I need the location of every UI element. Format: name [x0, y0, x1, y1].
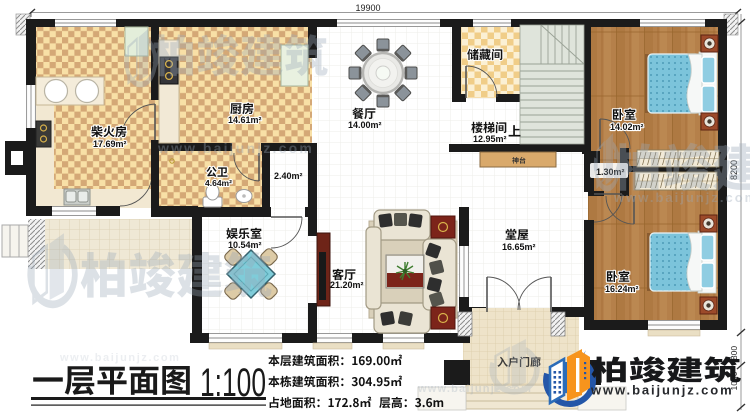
svg-text:16.65m²: 16.65m²: [502, 242, 536, 252]
svg-text:2.40m²: 2.40m²: [274, 171, 303, 181]
svg-text:21.20m²: 21.20m²: [330, 280, 364, 290]
svg-text:www.baijunjz.com: www.baijunjz.com: [157, 140, 314, 156]
svg-text:10.54m²: 10.54m²: [228, 240, 262, 250]
svg-text:16.24m²: 16.24m²: [605, 284, 639, 294]
svg-text:19900: 19900: [355, 3, 380, 13]
svg-text:www.baijunjz.com: www.baijunjz.com: [59, 352, 181, 364]
svg-text:17.69m²: 17.69m²: [93, 139, 127, 149]
svg-text:14.00m²: 14.00m²: [348, 120, 382, 130]
svg-text:www.baijunjz.com: www.baijunjz.com: [417, 383, 532, 395]
svg-text:14.61m²: 14.61m²: [228, 115, 262, 125]
svg-text:www.baijunjz.com: www.baijunjz.com: [590, 383, 734, 398]
svg-text:14.02m²: 14.02m²: [610, 122, 644, 132]
svg-text:www.baijunjz.com: www.baijunjz.com: [613, 190, 750, 205]
svg-text:12.95m²: 12.95m²: [473, 134, 507, 144]
svg-text:4.64m²: 4.64m²: [205, 178, 232, 188]
